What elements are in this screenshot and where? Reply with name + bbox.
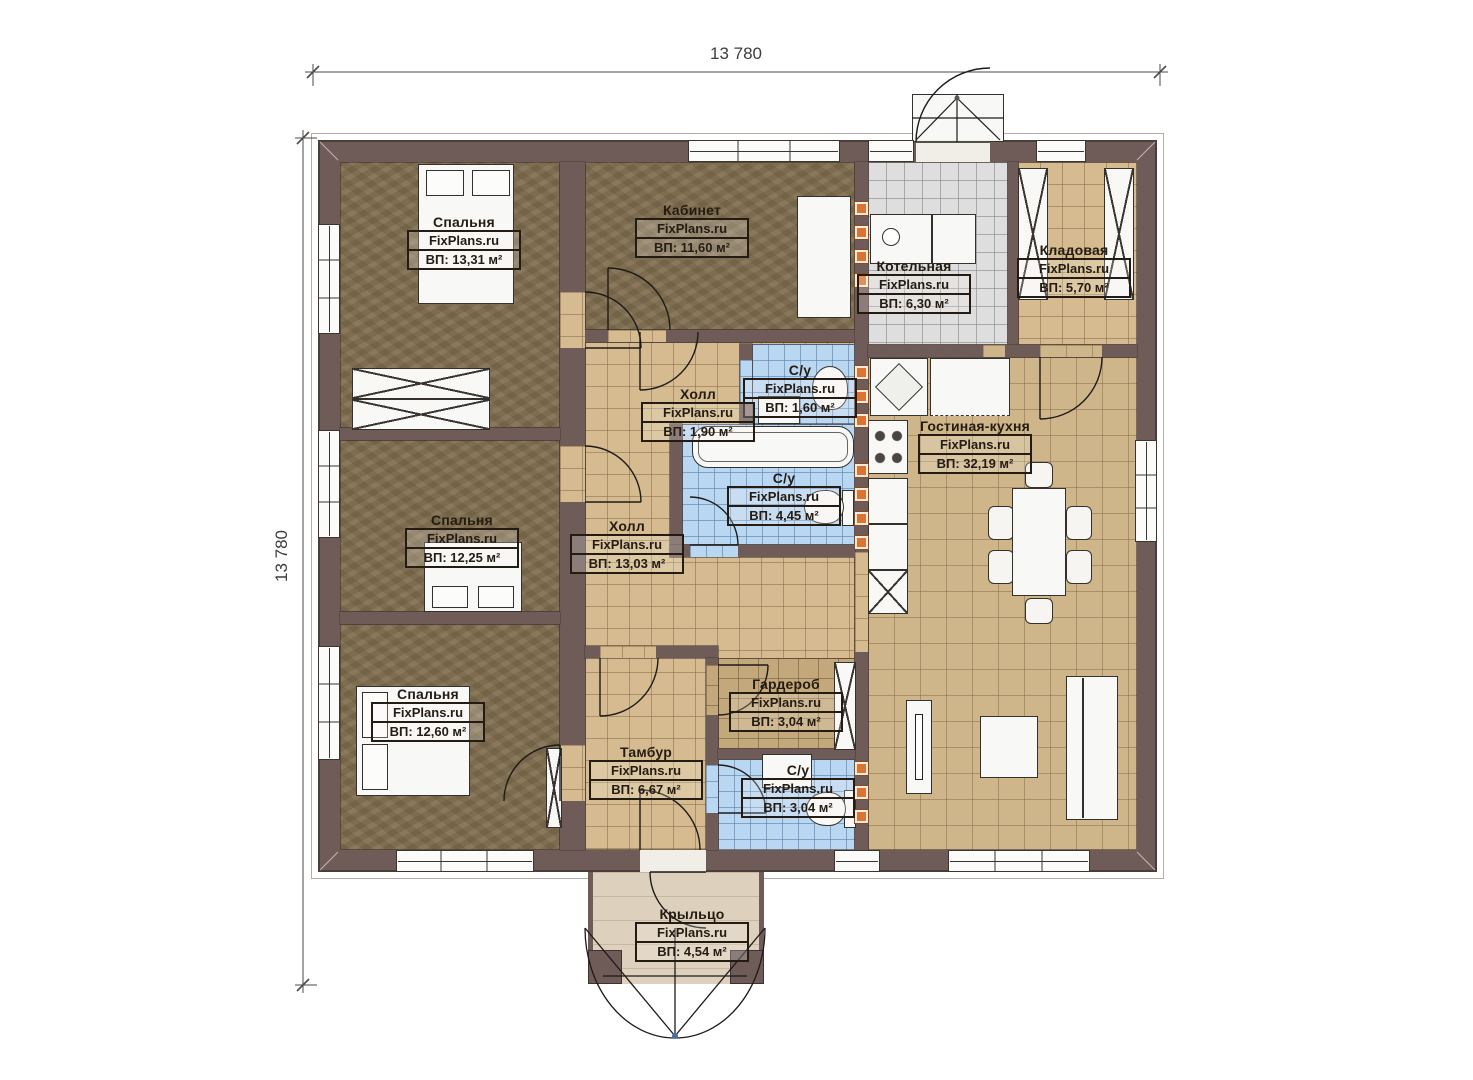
watermark: FixPlans.ru: [741, 778, 855, 799]
vent-block: [855, 762, 868, 775]
wall-bedroom2-3: [340, 612, 560, 624]
room-area: ВП: 3,04 м²: [741, 797, 855, 818]
room-label-porch: Крыльцо FixPlans.ru ВП: 4,54 м²: [635, 906, 749, 962]
watermark: FixPlans.ru: [570, 534, 684, 555]
tv-screen: [915, 714, 923, 780]
kitchen-counter: [930, 358, 1010, 416]
window-living-right: [1135, 440, 1157, 542]
study-sofa: [797, 196, 851, 318]
room-name: Кладовая: [1017, 242, 1131, 258]
vent-block: [855, 810, 868, 823]
dining-chair: [1066, 550, 1092, 584]
room-name: Крыльцо: [635, 906, 749, 922]
door-gap-wardrobe: [706, 665, 718, 715]
wardrobe-cabinet-row: [352, 368, 490, 399]
watermark: FixPlans.ru: [405, 528, 519, 549]
stove: [868, 420, 908, 474]
vent-block: [855, 464, 868, 477]
room-area: ВП: 32,19 м²: [918, 453, 1032, 474]
room-label-hall-main: Холл FixPlans.ru ВП: 13,03 м²: [570, 518, 684, 574]
room-label-wc-small: С/у FixPlans.ru ВП: 1,60 м²: [743, 362, 857, 418]
room-area: ВП: 13,31 м²: [407, 249, 521, 270]
room-label-wc-bottom: С/у FixPlans.ru ВП: 3,04 м²: [741, 762, 855, 818]
room-name: С/у: [727, 470, 841, 486]
watermark: FixPlans.ru: [589, 760, 703, 781]
room-label-bedroom-bottom-left: Спальня FixPlans.ru ВП: 12,60 м²: [371, 686, 485, 742]
door-gap-bedroom-bottom-left: [560, 745, 585, 801]
room-label-wardrobe: Гардероб FixPlans.ru ВП: 3,04 м²: [729, 676, 843, 732]
room-name: Тамбур: [589, 744, 703, 760]
dining-table: [1012, 488, 1066, 596]
window-bedroom-middle-left: [318, 430, 340, 538]
opening-hall-living: [855, 552, 868, 652]
door-gap-wc-main: [690, 545, 738, 557]
coffee-table: [980, 716, 1038, 778]
boiler-unit: [932, 214, 976, 264]
dimension-left-label: 13 780: [272, 530, 292, 582]
room-area: ВП: 4,54 м²: [635, 941, 749, 962]
open-door-leaf: [546, 748, 562, 828]
wardrobe-cabinet-row: [352, 399, 490, 430]
watermark: FixPlans.ru: [371, 702, 485, 723]
back-porch-steps: [912, 94, 1004, 142]
room-area: ВП: 4,45 м²: [727, 505, 841, 526]
sofa-cushion-line: [1082, 678, 1084, 818]
room-label-bedroom-top-left: Спальня FixPlans.ru ВП: 13,31 м²: [407, 214, 521, 270]
room-area: ВП: 6,67 м²: [589, 779, 703, 800]
pillow: [472, 170, 510, 196]
room-name: Холл: [570, 518, 684, 534]
door-gap-boiler: [983, 345, 1005, 357]
window-bedroom-bottom: [396, 850, 534, 872]
room-label-wc-main: С/у FixPlans.ru ВП: 4,45 м²: [727, 470, 841, 526]
vent-block: [855, 488, 868, 501]
room-name: Кабинет: [635, 202, 749, 218]
room-name: Котельная: [857, 258, 971, 274]
vent-block: [855, 786, 868, 799]
watermark: FixPlans.ru: [1017, 258, 1131, 279]
watermark: FixPlans.ru: [857, 274, 971, 295]
dining-chair: [988, 506, 1014, 540]
room-area: ВП: 13,03 м²: [570, 553, 684, 574]
window-wc-bottom: [834, 850, 880, 872]
room-label-boiler-room: Котельная FixPlans.ru ВП: 6,30 м²: [857, 258, 971, 314]
vent-block: [855, 536, 868, 549]
watermark: FixPlans.ru: [635, 218, 749, 239]
window-living-bottom: [948, 850, 1090, 872]
door-gap-bedroom-middle-left: [560, 446, 585, 502]
dining-chair: [988, 550, 1014, 584]
floor-plan-canvas: 13 780 13 780: [0, 0, 1473, 1080]
window-boiler-top: [868, 140, 914, 162]
watermark: FixPlans.ru: [407, 230, 521, 251]
window-study-top: [688, 140, 840, 162]
porch-center-dot: [672, 1033, 678, 1039]
pillow: [362, 744, 388, 790]
room-name: С/у: [741, 762, 855, 778]
pillow: [426, 170, 464, 196]
room-name: Гардероб: [729, 676, 843, 692]
dining-chair: [1066, 506, 1092, 540]
room-name: Гостиная-кухня: [918, 418, 1032, 434]
dining-chair: [1025, 598, 1053, 624]
room-area: ВП: 1,90 м²: [641, 421, 755, 442]
room-area: ВП: 12,60 м²: [371, 721, 485, 742]
porch-post-left: [588, 950, 622, 984]
room-name: Спальня: [405, 512, 519, 528]
room-name: Спальня: [371, 686, 485, 702]
room-label-hall-small: Холл FixPlans.ru ВП: 1,90 м²: [641, 386, 755, 442]
watermark: FixPlans.ru: [727, 486, 841, 507]
front-door-opening: [640, 850, 706, 872]
vent-block: [855, 512, 868, 525]
vent-block: [855, 202, 868, 215]
door-gap-bedroom-top-left: [560, 292, 585, 348]
room-area: ВП: 12,25 м²: [405, 547, 519, 568]
door-gap-study: [608, 330, 666, 342]
room-area: ВП: 6,30 м²: [857, 293, 971, 314]
back-door-opening: [916, 140, 990, 162]
watermark: FixPlans.ru: [635, 922, 749, 943]
door-gap-wc-bottom: [706, 765, 718, 813]
room-area: ВП: 1,60 м²: [743, 397, 857, 418]
room-area: ВП: 3,04 м²: [729, 711, 843, 732]
watermark: FixPlans.ru: [729, 692, 843, 713]
room-label-living-kitchen: Гостиная-кухня FixPlans.ru ВП: 32,19 м²: [918, 418, 1032, 474]
kitchen-cabinet: [868, 478, 908, 524]
kitchen-cabinet-cross: [868, 570, 908, 614]
watermark: FixPlans.ru: [743, 378, 857, 399]
pillow: [478, 586, 514, 608]
washer-drum: [882, 228, 900, 246]
room-name: Холл: [641, 386, 755, 402]
room-name: Спальня: [407, 214, 521, 230]
door-gap-vestibule: [600, 646, 656, 658]
window-bedroom-top-left: [318, 224, 340, 334]
washing-machine: [870, 214, 932, 264]
door-gap-storage: [1040, 345, 1102, 357]
room-area: ВП: 11,60 м²: [635, 237, 749, 258]
room-area: ВП: 5,70 м²: [1017, 277, 1131, 298]
kitchen-cabinet: [868, 524, 908, 570]
room-label-storage: Кладовая FixPlans.ru ВП: 5,70 м²: [1017, 242, 1131, 298]
watermark: FixPlans.ru: [641, 402, 755, 423]
window-storage-top: [1036, 140, 1086, 162]
pillow: [432, 586, 468, 608]
vent-block: [855, 226, 868, 239]
room-label-bedroom-middle-left: Спальня FixPlans.ru ВП: 12,25 м²: [405, 512, 519, 568]
room-label-study: Кабинет FixPlans.ru ВП: 11,60 м²: [635, 202, 749, 258]
sofa: [1066, 676, 1118, 820]
window-bedroom-bottom-left: [318, 646, 340, 760]
dimension-top-label: 13 780: [710, 44, 762, 64]
room-name: С/у: [743, 362, 857, 378]
room-label-vestibule: Тамбур FixPlans.ru ВП: 6,67 м²: [589, 744, 703, 800]
watermark: FixPlans.ru: [918, 434, 1032, 455]
